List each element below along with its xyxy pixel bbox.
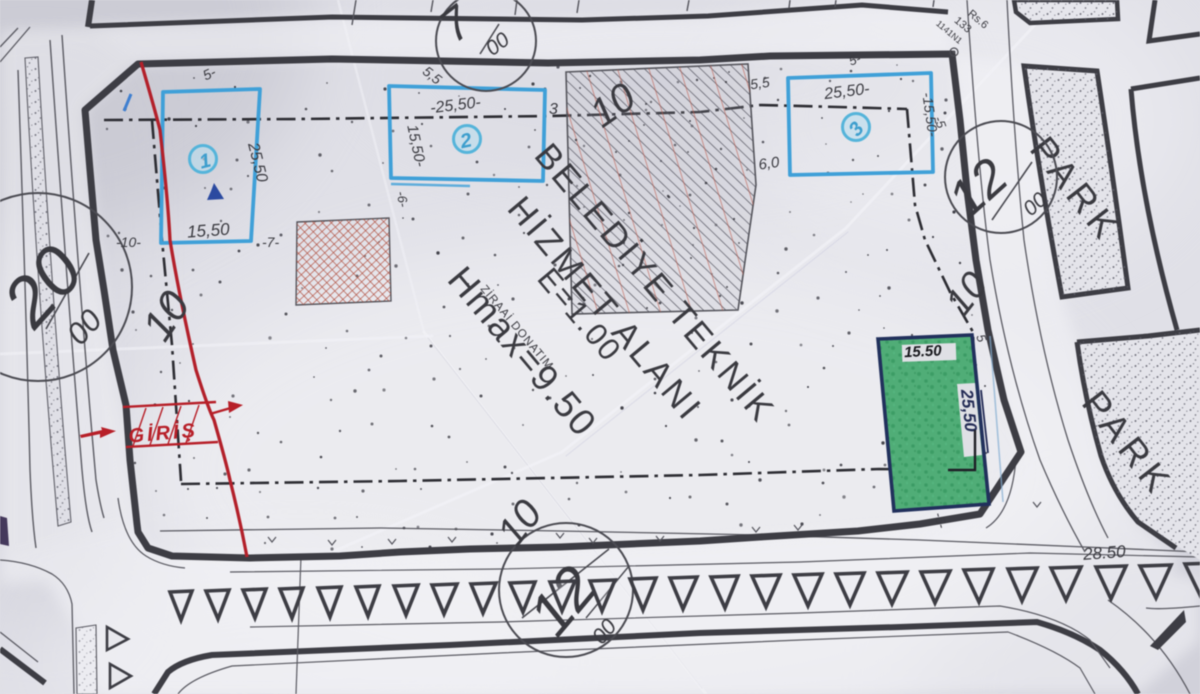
svg-text:6,0: 6,0: [757, 154, 781, 174]
svg-text:-6-: -6-: [394, 190, 412, 209]
svg-text:3: 3: [549, 101, 558, 118]
svg-text:5,5: 5,5: [749, 74, 771, 93]
svg-text:28.50: 28.50: [1081, 542, 1126, 564]
svg-text:-7-: -7-: [262, 234, 279, 250]
svg-text:-10-: -10-: [116, 234, 141, 250]
svg-text:15.50: 15.50: [904, 342, 943, 361]
svg-text:15,50: 15,50: [186, 220, 230, 242]
